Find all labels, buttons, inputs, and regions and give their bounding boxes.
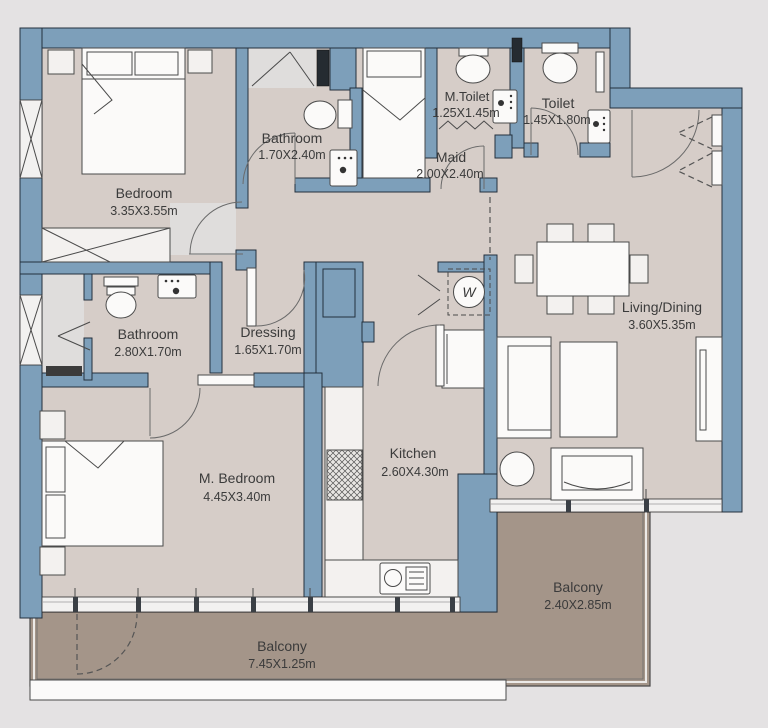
dims-bathroom-master: 2.80X1.70m bbox=[114, 345, 181, 359]
pillow bbox=[46, 447, 65, 492]
label-bathroom-master: Bathroom bbox=[118, 326, 179, 342]
wall-niche bbox=[317, 50, 329, 86]
sink bbox=[588, 110, 610, 143]
kitchen-door-leaf bbox=[436, 325, 444, 386]
dining-table bbox=[537, 242, 629, 296]
label-bedroom: Bedroom bbox=[116, 185, 173, 201]
label-bathroom-top: Bathroom bbox=[262, 130, 323, 146]
balcony-planter bbox=[30, 680, 506, 700]
nightstand bbox=[188, 50, 212, 73]
tv bbox=[700, 350, 706, 430]
dims-m-toilet: 1.25X1.45m bbox=[432, 106, 499, 120]
label-balcony-main: Balcony bbox=[257, 638, 307, 654]
pillow bbox=[367, 51, 421, 77]
dims-living: 3.60X5.35m bbox=[628, 318, 695, 332]
dims-dressing: 1.65X1.70m bbox=[234, 343, 301, 357]
dims-balcony-main: 7.45X1.25m bbox=[248, 657, 315, 671]
floor-plan-drawing: W bbox=[0, 0, 768, 728]
label-toilet: Toilet bbox=[542, 95, 575, 111]
mirror bbox=[104, 277, 138, 286]
coffee-table bbox=[560, 342, 617, 437]
dims-toilet: 1.45X1.80m bbox=[523, 113, 590, 127]
pillow bbox=[87, 52, 132, 75]
entry-door-leaf bbox=[712, 151, 722, 185]
dims-m-bedroom: 4.45X3.40m bbox=[203, 490, 270, 504]
m-bedroom-door bbox=[198, 375, 254, 385]
dims-bedroom: 3.35X3.55m bbox=[110, 204, 177, 218]
toilet-tank bbox=[542, 43, 578, 53]
dims-bathroom-top: 1.70X2.40m bbox=[258, 148, 325, 162]
nightstand bbox=[40, 411, 65, 439]
label-living: Living/Dining bbox=[622, 299, 702, 315]
toilet bbox=[456, 55, 490, 83]
shower-area-bathroom-master bbox=[42, 274, 84, 373]
maid-furniture bbox=[363, 48, 425, 178]
label-kitchen: Kitchen bbox=[390, 445, 437, 461]
shower-area-bathroom-top bbox=[248, 48, 316, 88]
dining-chair bbox=[547, 296, 573, 314]
label-m-bedroom: M. Bedroom bbox=[199, 470, 275, 486]
stove bbox=[327, 450, 362, 500]
dining-chair bbox=[588, 296, 614, 314]
shower-shelf bbox=[46, 366, 82, 376]
nightstand bbox=[40, 547, 65, 575]
dining-chair bbox=[547, 224, 573, 242]
label-maid: Maid bbox=[436, 149, 466, 165]
dining-chair bbox=[515, 255, 533, 283]
toilet bbox=[304, 101, 336, 129]
dims-maid: 2.00X2.40m bbox=[416, 167, 483, 181]
window-left-top bbox=[20, 100, 42, 178]
pillow bbox=[46, 495, 65, 538]
door-leaf bbox=[247, 268, 256, 326]
label-balcony-living: Balcony bbox=[553, 579, 603, 595]
fridge bbox=[442, 330, 484, 388]
washer-symbol: W bbox=[462, 284, 477, 300]
entry-door-leaf bbox=[712, 115, 722, 146]
side-table bbox=[500, 452, 534, 486]
label-m-toilet: M.Toilet bbox=[445, 89, 490, 104]
nightstand bbox=[48, 50, 74, 74]
toilet bbox=[543, 53, 577, 83]
toilet bbox=[106, 292, 136, 318]
dims-balcony-living: 2.40X2.85m bbox=[544, 598, 611, 612]
dims-kitchen: 2.60X4.30m bbox=[381, 465, 448, 479]
wall-niche bbox=[512, 38, 522, 62]
window-left-bottom bbox=[20, 295, 42, 365]
floor-plan-page: W bbox=[0, 0, 768, 728]
sink bbox=[158, 275, 196, 298]
dining-chair bbox=[588, 224, 614, 242]
pillow bbox=[135, 52, 178, 75]
label-dressing: Dressing bbox=[240, 324, 295, 340]
dining-chair bbox=[630, 255, 648, 283]
toilet-tank bbox=[338, 100, 352, 128]
mirror bbox=[596, 52, 604, 92]
